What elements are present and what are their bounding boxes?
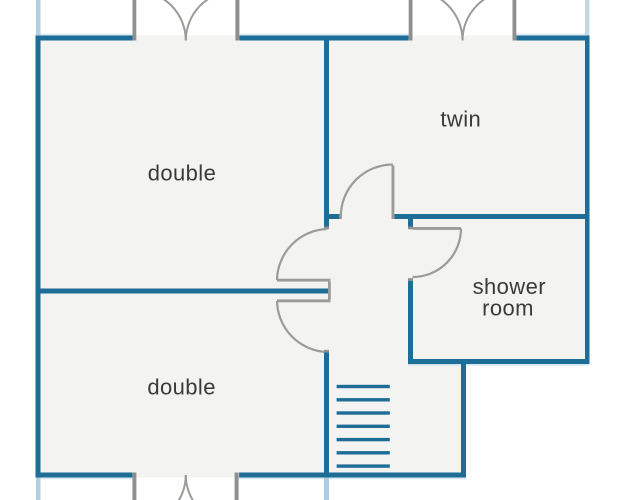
svg-text:room: room <box>482 295 534 320</box>
svg-text:twin: twin <box>440 107 481 132</box>
svg-text:double: double <box>147 375 215 400</box>
svg-text:double: double <box>148 161 216 186</box>
